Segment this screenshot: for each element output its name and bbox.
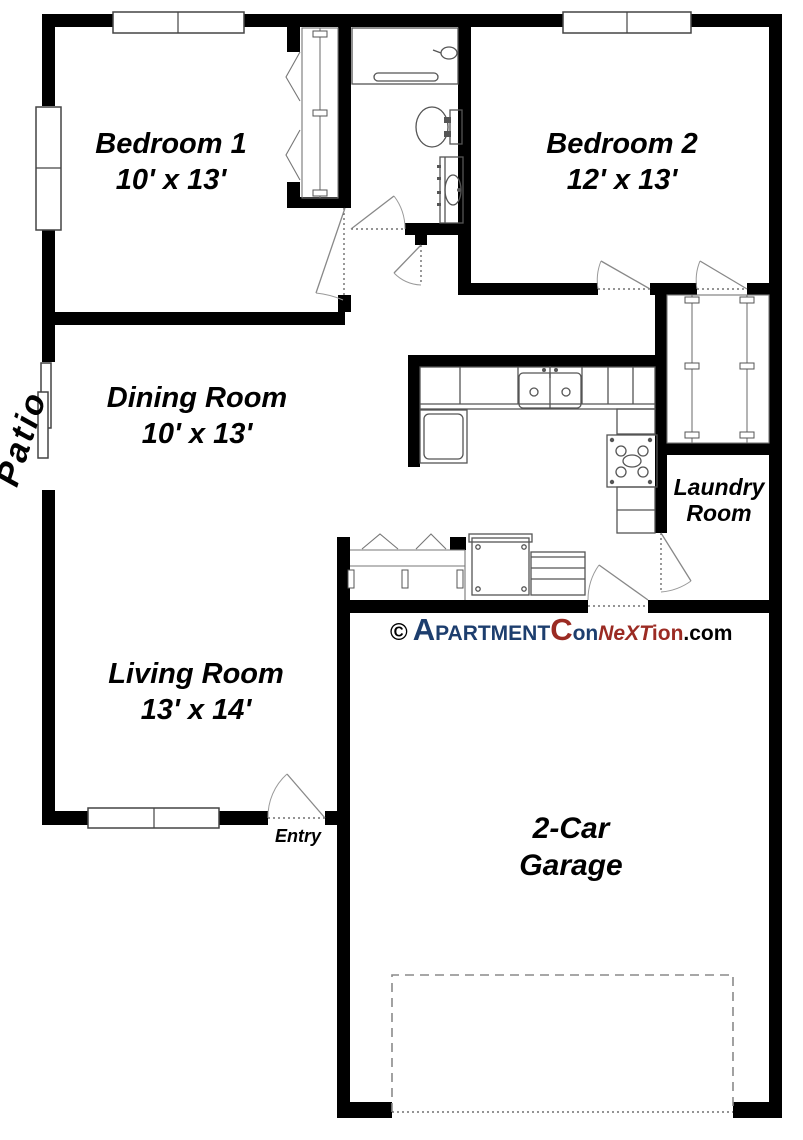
room-name: Laundry xyxy=(649,474,789,500)
garage-door-icon xyxy=(392,975,733,1112)
coat-closet xyxy=(348,534,465,600)
living-room-label: Living Room 13' x 14' xyxy=(76,656,316,728)
copyright-icon: © xyxy=(390,619,408,647)
door-swing-icon xyxy=(351,196,405,229)
dining-room-label: Dining Room 10' x 13' xyxy=(77,380,317,452)
closet-rod-icon xyxy=(692,295,747,443)
kitchen-sink-icon xyxy=(519,366,581,408)
toilet-icon xyxy=(416,107,462,147)
entry-label: Entry xyxy=(248,826,348,847)
window-icon xyxy=(563,12,691,33)
room-name: Room xyxy=(649,500,789,526)
room-name: Bedroom 1 xyxy=(51,126,291,162)
laundry-room-label: Laundry Room xyxy=(649,474,789,526)
washer-icon xyxy=(469,534,532,595)
bathroom-fixtures xyxy=(352,28,463,223)
bedroom2-closet xyxy=(667,295,769,443)
bedroom1-label: Bedroom 1 10' x 13' xyxy=(51,126,291,198)
room-name: Garage xyxy=(451,847,691,884)
watermark-segment: C xyxy=(550,612,572,648)
door-swing-icon xyxy=(597,261,650,289)
watermark-segment: .com xyxy=(683,622,732,646)
garage-label: 2-Car Garage xyxy=(451,810,691,884)
door-swing-icon xyxy=(588,565,648,606)
door-swing-icon xyxy=(661,533,691,592)
watermark: © A PARTMENT C on NeXT ion .com xyxy=(390,612,732,648)
window-icon xyxy=(88,808,219,828)
door-swing-icon xyxy=(316,208,345,300)
watermark-segment: on xyxy=(573,622,599,646)
dryer-icon xyxy=(531,552,585,595)
refrigerator-icon xyxy=(420,410,467,463)
room-name: Living Room xyxy=(76,656,316,692)
bedroom1-closet xyxy=(286,28,338,198)
room-dims: 12' x 13' xyxy=(502,162,742,198)
shower-head-icon xyxy=(433,47,457,59)
bedroom2-label: Bedroom 2 12' x 13' xyxy=(502,126,742,198)
window-icon xyxy=(113,12,244,33)
watermark-segment: A xyxy=(413,612,435,648)
floor-plan: Bedroom 1 10' x 13' Bedroom 2 12' x 13' … xyxy=(0,0,803,1140)
room-name: 2-Car xyxy=(451,810,691,847)
kitchen xyxy=(420,366,657,595)
watermark-segment: ion xyxy=(652,622,684,646)
bifold-door-icon xyxy=(362,534,446,549)
room-dims: 10' x 13' xyxy=(77,416,317,452)
room-name: Dining Room xyxy=(77,380,317,416)
door-swing-icon xyxy=(696,261,747,289)
door-swing-icon xyxy=(268,774,325,818)
door-swing-icon xyxy=(394,245,421,285)
watermark-segment: NeXT xyxy=(598,622,652,646)
watermark-segment: PARTMENT xyxy=(435,622,550,646)
room-dims: 10' x 13' xyxy=(51,162,291,198)
room-name: Bedroom 2 xyxy=(502,126,742,162)
room-dims: 13' x 14' xyxy=(76,692,316,728)
